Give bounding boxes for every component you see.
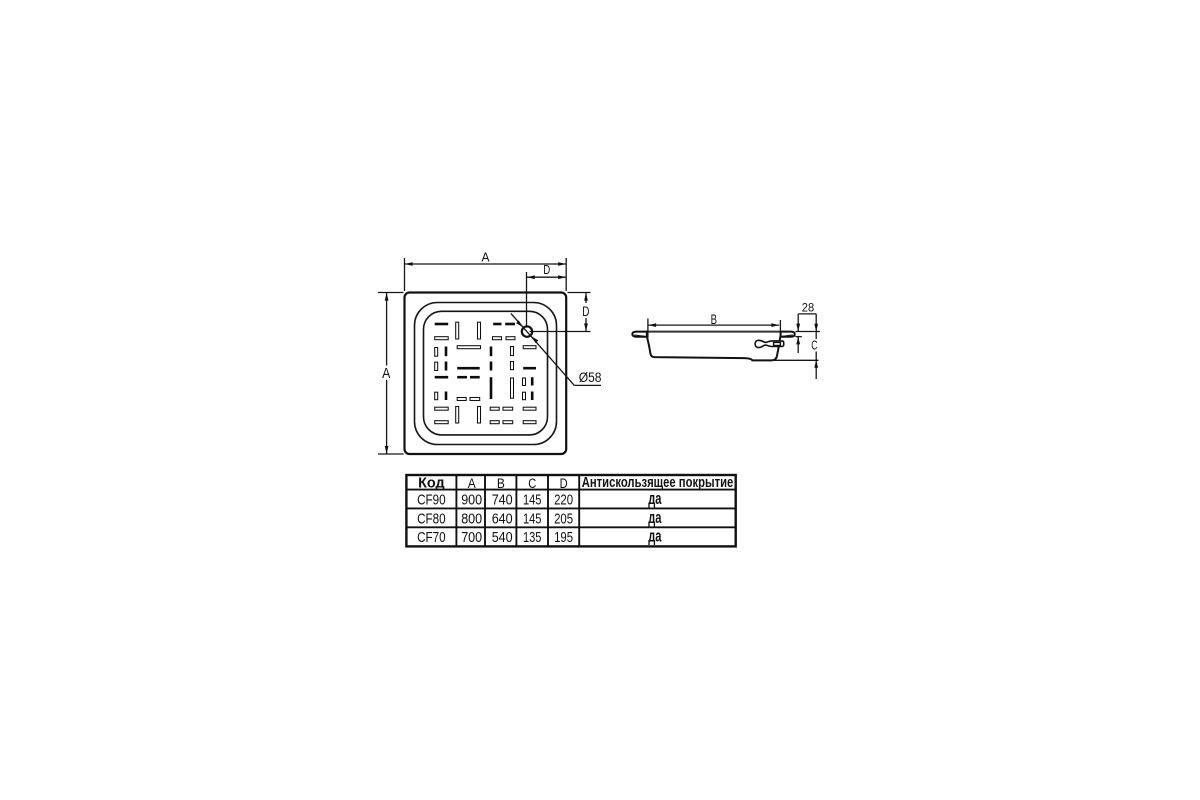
- svg-text:A: A: [482, 250, 491, 264]
- svg-text:B: B: [497, 476, 505, 491]
- svg-text:D: D: [560, 476, 568, 491]
- svg-text:640: 640: [492, 511, 513, 527]
- svg-text:540: 540: [492, 530, 513, 546]
- svg-text:D: D: [582, 303, 589, 319]
- svg-text:135: 135: [523, 530, 542, 546]
- svg-text:740: 740: [492, 493, 513, 509]
- svg-text:195: 195: [554, 530, 573, 546]
- svg-text:C: C: [528, 476, 536, 491]
- svg-text:D: D: [543, 263, 550, 277]
- svg-text:145: 145: [523, 493, 542, 509]
- svg-text:да: да: [648, 508, 662, 527]
- svg-text:да: да: [648, 527, 662, 546]
- svg-text:145: 145: [523, 511, 542, 527]
- svg-text:220: 220: [554, 493, 573, 509]
- svg-text:A: A: [382, 366, 390, 382]
- svg-text:да: да: [648, 489, 662, 508]
- svg-text:CF70: CF70: [417, 530, 446, 546]
- svg-text:Код: Код: [418, 476, 445, 492]
- svg-text:A: A: [468, 476, 476, 491]
- svg-text:Ø58: Ø58: [579, 370, 602, 385]
- svg-text:700: 700: [461, 530, 482, 546]
- svg-text:B: B: [711, 311, 717, 327]
- svg-text:CF90: CF90: [417, 493, 446, 509]
- svg-text:28: 28: [802, 301, 815, 315]
- svg-text:C: C: [811, 338, 817, 353]
- svg-text:205: 205: [554, 511, 573, 527]
- svg-text:CF80: CF80: [417, 511, 446, 527]
- svg-text:900: 900: [461, 493, 482, 509]
- svg-text:800: 800: [461, 511, 482, 527]
